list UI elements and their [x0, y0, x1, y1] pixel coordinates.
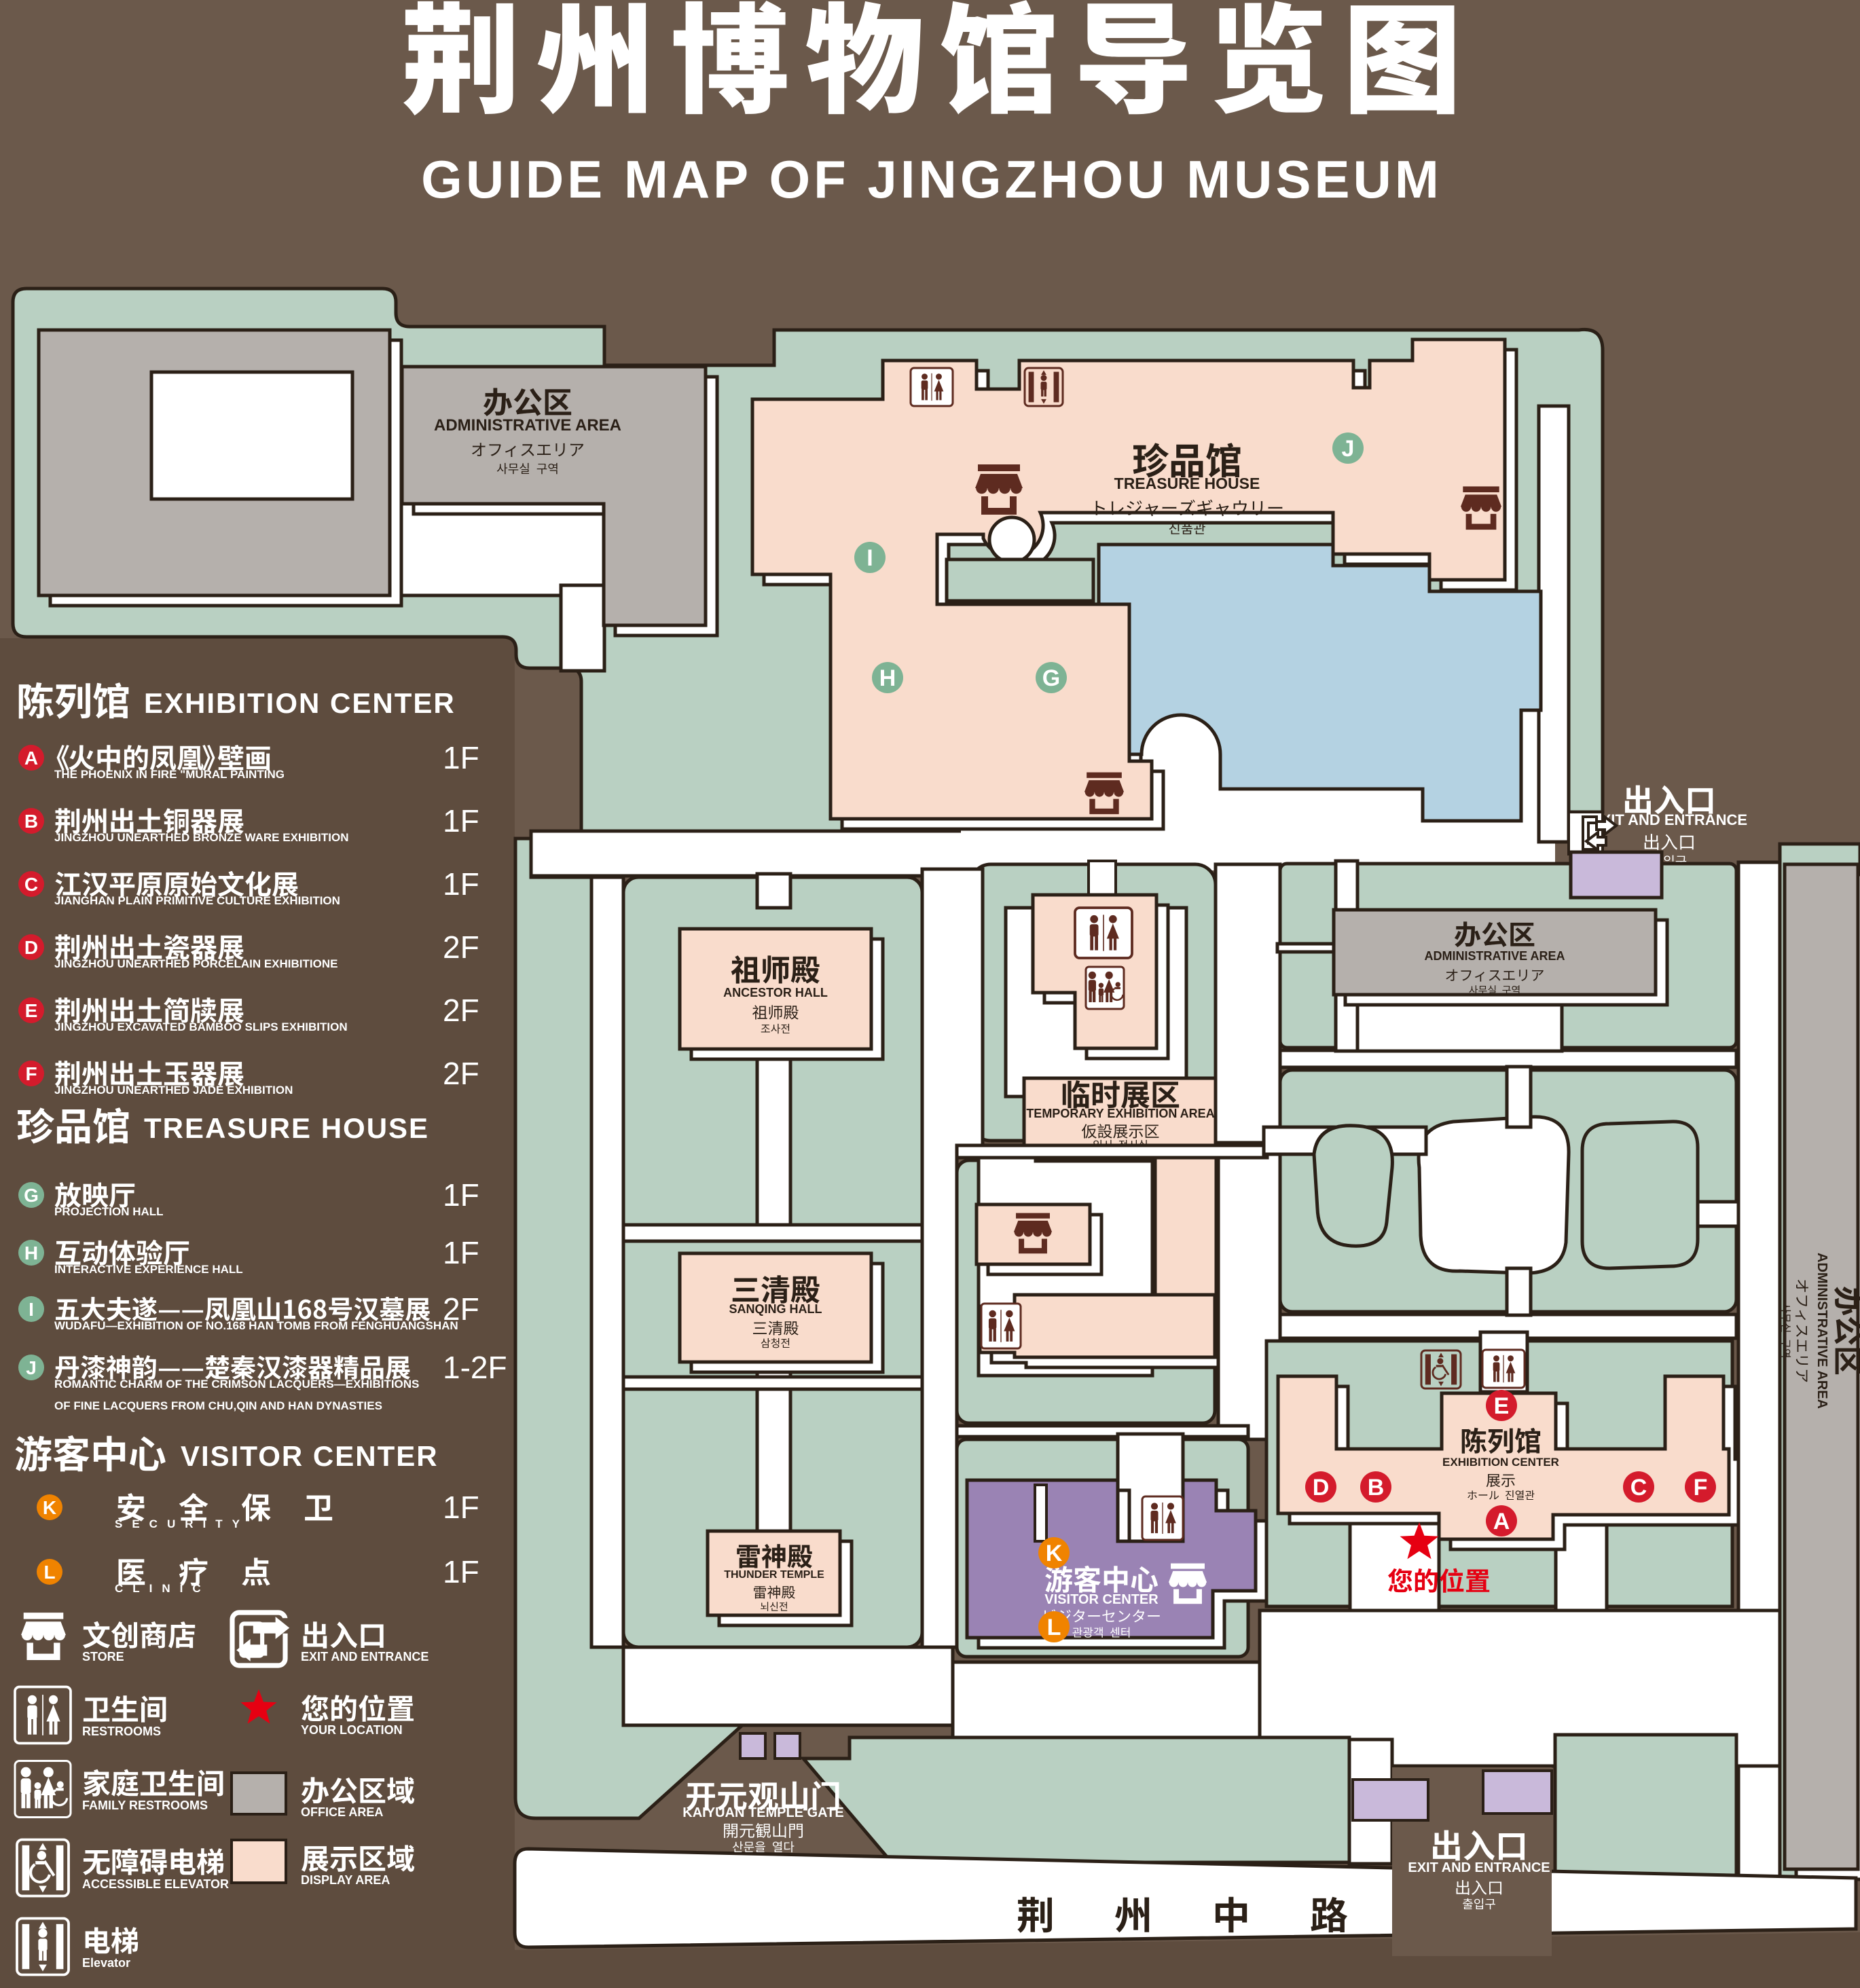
svg-text:G: G: [24, 1185, 39, 1206]
svg-text:SANQING HALL: SANQING HALL: [729, 1302, 822, 1316]
svg-text:B: B: [24, 811, 38, 832]
svg-text:2F: 2F: [443, 993, 479, 1028]
svg-text:EXHIBITION CENTER: EXHIBITION CENTER: [1442, 1456, 1559, 1469]
svg-text:OFFICE AREA: OFFICE AREA: [301, 1805, 383, 1819]
svg-text:JINGZHOU UNEARTHED PORCELAIN E: JINGZHOU UNEARTHED PORCELAIN EXHIBITIONE: [54, 957, 338, 970]
svg-text:TREASURE HOUSE: TREASURE HOUSE: [1114, 475, 1260, 492]
svg-text:F: F: [1694, 1475, 1708, 1501]
svg-text:J: J: [1342, 436, 1355, 462]
svg-text:OF FINE LACQUERS FROM CHU,QIN: OF FINE LACQUERS FROM CHU,QIN AND HAN DY…: [54, 1399, 382, 1412]
svg-text:STORE: STORE: [82, 1650, 124, 1663]
svg-text:JINGZHOU UNEARTHED BRONZE WARE: JINGZHOU UNEARTHED BRONZE WARE EXHIBITIO…: [54, 831, 349, 844]
svg-text:A: A: [24, 748, 38, 769]
svg-text:VISITOR CENTER: VISITOR CENTER: [1044, 1592, 1159, 1607]
svg-text:H: H: [879, 665, 896, 691]
svg-text:L: L: [43, 1562, 55, 1583]
svg-text:RESTROOMS: RESTROOMS: [82, 1725, 161, 1738]
svg-text:H: H: [24, 1242, 38, 1264]
svg-text:L: L: [1047, 1615, 1061, 1640]
svg-text:SECURITY: SECURITY: [115, 1517, 249, 1530]
svg-text:TEMPORARY EXHIBITION AREA: TEMPORARY EXHIBITION AREA: [1026, 1107, 1214, 1120]
svg-text:JINGZHOU UNEARTHED JADE EXHIBI: JINGZHOU UNEARTHED JADE EXHIBITION: [54, 1084, 293, 1097]
svg-text:FAMILY RESTROOMS: FAMILY RESTROOMS: [82, 1799, 208, 1812]
svg-text:EXHIBITION CENTER: EXHIBITION CENTER: [144, 687, 456, 719]
svg-text:KAIYUAN TEMPLE GATE: KAIYUAN TEMPLE GATE: [682, 1805, 843, 1820]
svg-text:YOUR LOCATION: YOUR LOCATION: [301, 1723, 403, 1737]
svg-text:TREASURE HOUSE: TREASURE HOUSE: [144, 1112, 429, 1144]
svg-text:C: C: [1630, 1475, 1647, 1501]
svg-text:2F: 2F: [443, 1291, 479, 1327]
svg-text:THUNDER TEMPLE: THUNDER TEMPLE: [724, 1569, 824, 1581]
svg-text:2F: 2F: [443, 1056, 479, 1091]
svg-text:1F: 1F: [443, 866, 479, 902]
svg-text:WUDAFU—EXHIBITION OF NO.168 HA: WUDAFU—EXHIBITION OF NO.168 HAN TOMB FRO…: [54, 1319, 458, 1332]
svg-text:E: E: [1494, 1393, 1510, 1419]
svg-text:1F: 1F: [443, 1490, 479, 1525]
svg-text:I: I: [867, 545, 873, 571]
svg-text:PROJECTION HALL: PROJECTION HALL: [54, 1205, 164, 1218]
svg-text:B: B: [1368, 1475, 1385, 1501]
svg-text:E: E: [25, 1000, 38, 1021]
svg-text:D: D: [24, 937, 38, 958]
svg-text:ADMINISTRATIVE AREA: ADMINISTRATIVE AREA: [1815, 1253, 1829, 1409]
svg-text:G: G: [1042, 665, 1060, 691]
svg-text:K: K: [1046, 1541, 1063, 1566]
svg-text:C: C: [24, 874, 38, 895]
svg-text:EXIT AND ENTRANCE: EXIT AND ENTRANCE: [301, 1650, 428, 1663]
svg-text:JIANGHAN PLAIN PRIMITIVE CULTU: JIANGHAN PLAIN PRIMITIVE CULTURE EXHIBIT…: [54, 894, 340, 907]
svg-text:1F: 1F: [443, 803, 479, 839]
svg-text:1F: 1F: [443, 1177, 479, 1213]
svg-text:1F: 1F: [443, 740, 479, 775]
svg-text:ADMINISTRATIVE AREA: ADMINISTRATIVE AREA: [434, 416, 621, 435]
svg-text:CLINIC: CLINIC: [115, 1582, 211, 1595]
svg-text:EXIT AND ENTRANCE: EXIT AND ENTRANCE: [1408, 1860, 1550, 1875]
svg-text:INTERACTIVE EXPERIENCE HALL: INTERACTIVE EXPERIENCE HALL: [54, 1263, 243, 1276]
svg-text:1F: 1F: [443, 1235, 479, 1270]
svg-text:DISPLAY AREA: DISPLAY AREA: [301, 1873, 390, 1887]
svg-text:A: A: [1493, 1509, 1510, 1534]
svg-text:Elevator: Elevator: [82, 1956, 130, 1970]
svg-text:ANCESTOR HALL: ANCESTOR HALL: [723, 986, 828, 999]
svg-text:2F: 2F: [443, 929, 479, 965]
svg-text:GUIDE MAP OF JINGZHOU MUSEUM: GUIDE MAP OF JINGZHOU MUSEUM: [421, 149, 1442, 209]
svg-text:ROMANTIC CHARM OF THE CRIMSON: ROMANTIC CHARM OF THE CRIMSON LACQUERS—E…: [54, 1378, 419, 1391]
svg-text:D: D: [1313, 1475, 1330, 1501]
svg-text:K: K: [43, 1497, 56, 1518]
svg-text:JINGZHOU EXCAVATED BAMBOO SLIP: JINGZHOU EXCAVATED BAMBOO SLIPS EXHIBITI…: [54, 1020, 348, 1033]
svg-text:ADMINISTRATIVE AREA: ADMINISTRATIVE AREA: [1425, 949, 1565, 963]
svg-text:VISITOR CENTER: VISITOR CENTER: [181, 1440, 439, 1472]
svg-text:1-2F: 1-2F: [443, 1350, 507, 1385]
svg-text:I: I: [29, 1299, 34, 1320]
svg-text:ACCESSIBLE ELEVATOR: ACCESSIBLE ELEVATOR: [82, 1877, 229, 1891]
svg-text:J: J: [26, 1357, 37, 1378]
svg-text:1F: 1F: [443, 1554, 479, 1589]
svg-text:THE PHOENIX IN FIRE "MURAL PAI: THE PHOENIX IN FIRE "MURAL PAINTING: [54, 768, 285, 781]
svg-text:F: F: [25, 1063, 37, 1084]
